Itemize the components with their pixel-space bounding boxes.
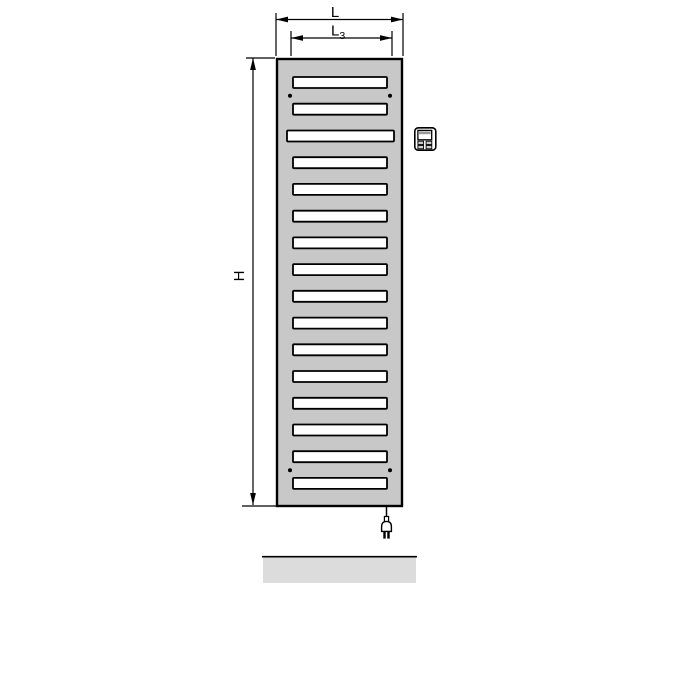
- heating-controller-icon: [415, 128, 436, 150]
- slat: [293, 398, 387, 409]
- dimension-inner-width: L3: [291, 23, 392, 57]
- slat: [293, 184, 387, 195]
- plug-body: [382, 521, 392, 531]
- slat: [293, 425, 387, 436]
- slat: [293, 211, 387, 222]
- dimension-height: H: [231, 58, 277, 506]
- slat: [293, 344, 387, 355]
- slat: [293, 371, 387, 382]
- dim-inner-arrow-left: [291, 35, 303, 41]
- slat: [293, 318, 387, 329]
- dim-width-arrow-left: [276, 17, 288, 23]
- dim-width-label: L: [331, 4, 339, 21]
- controller-button: [426, 146, 432, 149]
- mounting-hole: [388, 468, 392, 472]
- radiator-diagram: L L3 H: [0, 0, 700, 700]
- radiator-panel: [277, 59, 402, 506]
- slat: [293, 77, 387, 88]
- mounting-hole: [288, 94, 292, 98]
- radiator-body: [277, 59, 402, 506]
- controller-display-strip: [419, 132, 431, 135]
- power-plug-icon: [382, 507, 392, 539]
- floor-surface: [263, 558, 416, 584]
- dim-height-arrow-top: [250, 58, 256, 70]
- controller-button: [418, 141, 424, 144]
- dim-height-label: H: [231, 271, 248, 282]
- mounting-hole: [388, 94, 392, 98]
- floor: [262, 557, 417, 583]
- slat: [293, 104, 387, 115]
- slat: [293, 478, 387, 489]
- plug-prong: [387, 531, 389, 538]
- slat-wide: [287, 131, 394, 142]
- controller-button: [418, 146, 424, 149]
- slat: [293, 264, 387, 275]
- slat: [293, 291, 387, 302]
- radiator-diagram-page: L L3 H: [0, 0, 700, 700]
- dim-width-arrow-right: [391, 17, 403, 23]
- dim-height-arrow-bottom: [250, 493, 256, 505]
- controller-button: [426, 141, 432, 144]
- slat: [293, 451, 387, 462]
- dim-inner-arrow-right: [380, 35, 392, 41]
- mounting-hole: [288, 468, 292, 472]
- dim-inner-label: L3: [331, 23, 345, 43]
- plug-prong: [383, 531, 385, 538]
- slat: [293, 157, 387, 168]
- slat: [293, 237, 387, 248]
